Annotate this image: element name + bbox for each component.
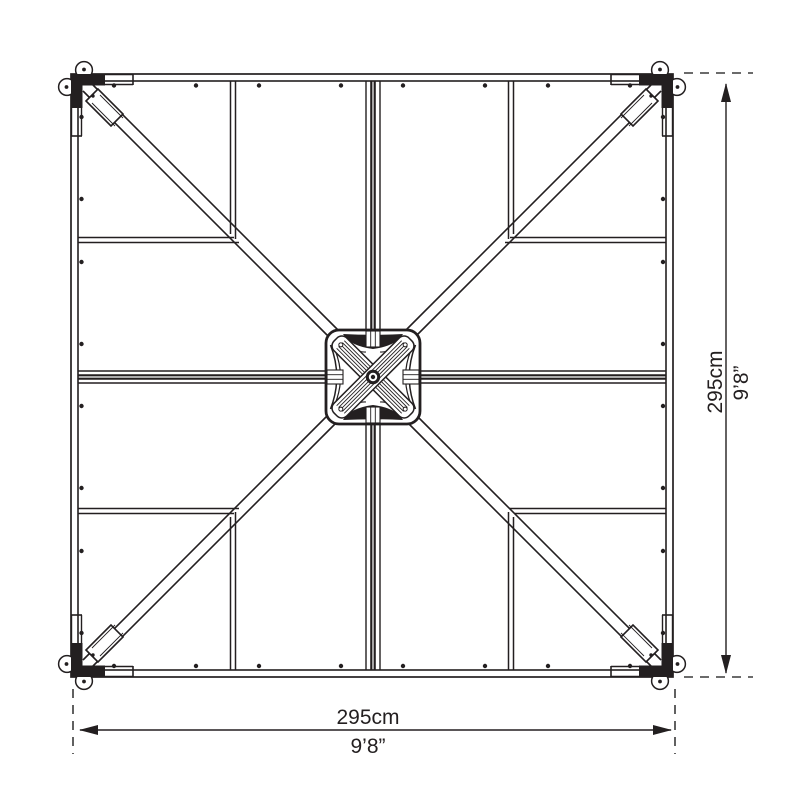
center-bolt-icon: [366, 370, 380, 384]
dimension-bottom: 295cm 9’8”: [79, 706, 672, 758]
arrow-right-icon: [653, 725, 672, 735]
corner-bracket-top-right: [611, 62, 685, 136]
corner-bracket-bottom-left: [59, 615, 133, 689]
drawing-canvas: 295cm 9’8” 295cm 9’8”: [0, 0, 800, 800]
center-hub: [326, 330, 420, 424]
corner-bracket-top-left: [59, 62, 133, 136]
dimension-right: 295cm 9’8”: [704, 83, 753, 674]
arrow-left-icon: [79, 725, 98, 735]
dimension-bottom-metric: 295cm: [336, 706, 399, 729]
dimension-right-metric: 295cm: [704, 350, 727, 413]
dimension-bottom-imperial: 9’8”: [350, 735, 385, 758]
arrow-down-icon: [721, 655, 731, 674]
arrow-up-icon: [721, 83, 731, 102]
corner-bracket-bottom-right: [611, 615, 685, 689]
dimension-right-imperial: 9’8”: [730, 365, 753, 400]
frame-plan-diagram: 295cm 9’8” 295cm 9’8”: [0, 0, 800, 800]
